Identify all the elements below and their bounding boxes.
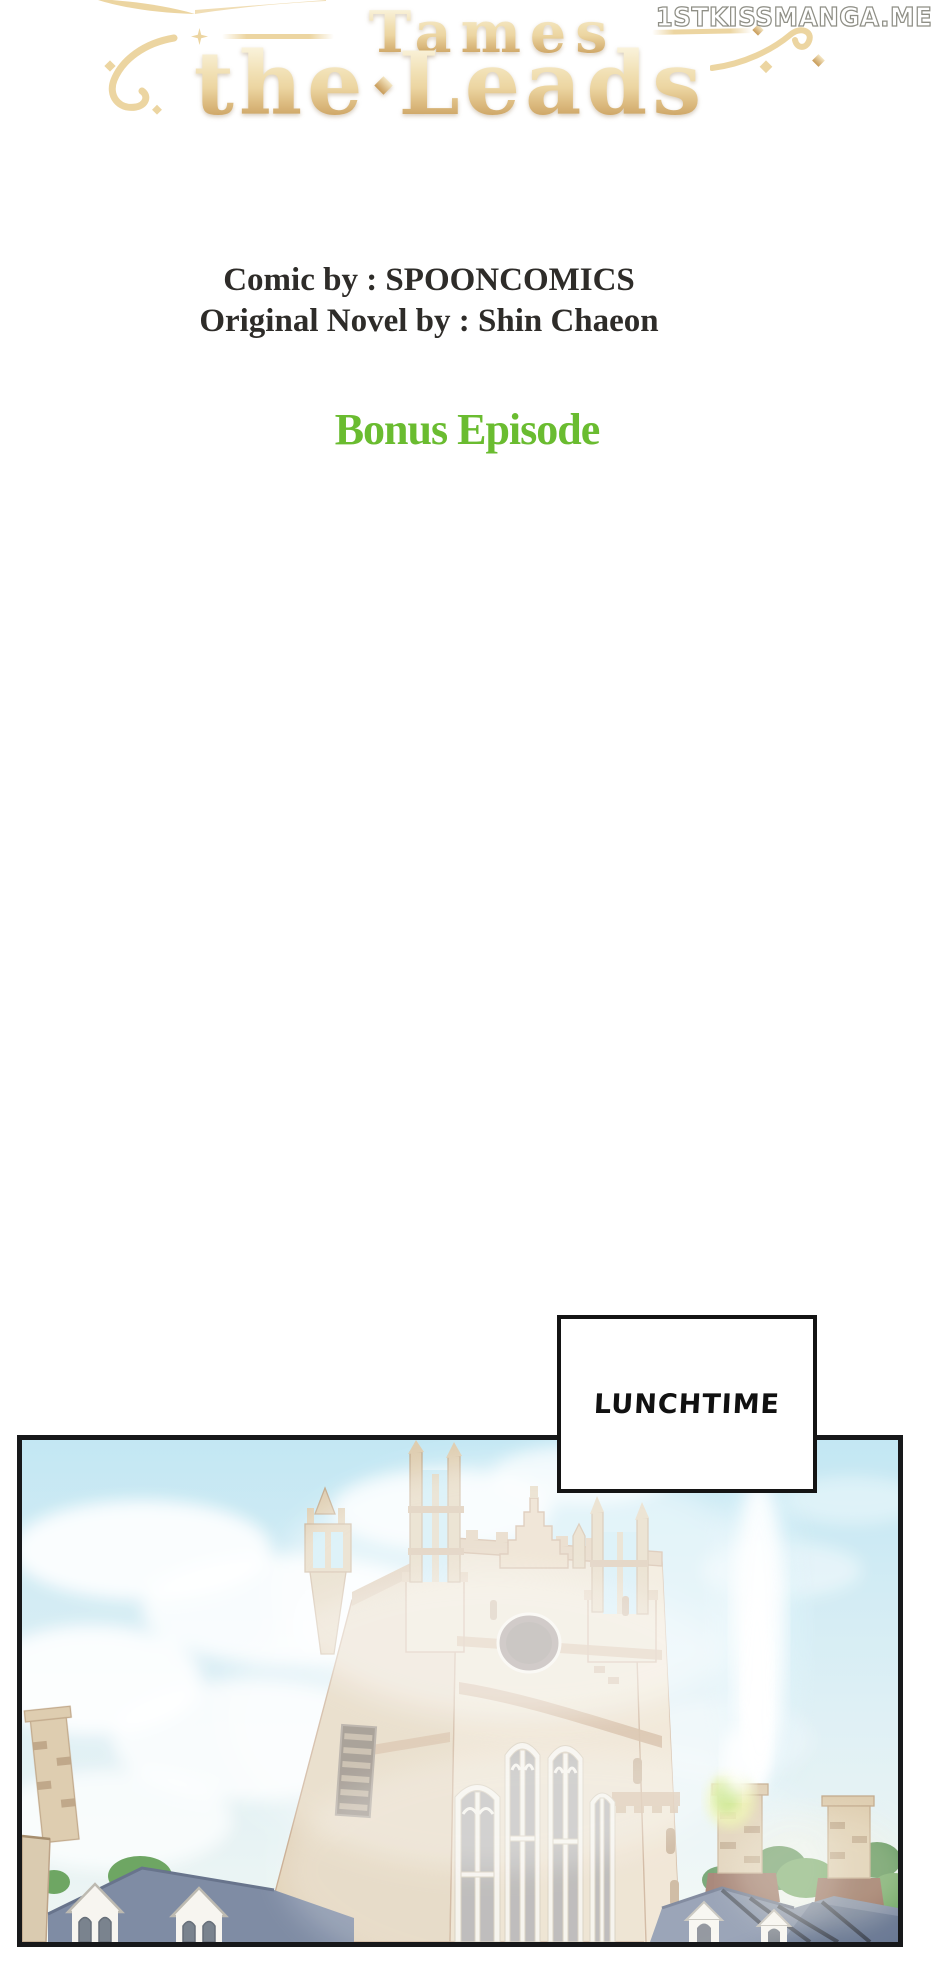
comic-panel <box>17 1435 903 1947</box>
speech-text: LUNCHTIME <box>593 1389 781 1420</box>
credits-block: Comic by : SPOONCOMICS Original Novel by… <box>0 260 858 342</box>
credit-comic-by: Comic by : SPOONCOMICS <box>0 260 858 301</box>
site-watermark: 1STKISSMANGA.ME <box>655 3 932 33</box>
title-top-swash-flourish <box>98 0 328 16</box>
title-line2: theLeads <box>150 40 750 127</box>
title-line2-word1: the <box>194 32 368 135</box>
title-separator-diamond-icon <box>374 76 392 94</box>
episode-title: Bonus Episode <box>38 404 896 455</box>
speech-box: LUNCHTIME <box>557 1315 817 1493</box>
credit-novel-by: Original Novel by : Shin Chaeon <box>0 301 858 342</box>
panel-illustration <box>22 1440 898 1942</box>
title-line2-word2: Leads <box>399 32 707 135</box>
haze-overlay <box>22 1440 898 1942</box>
comic-page: { "watermark": { "text": "1STKISSMANGA.M… <box>0 0 940 1972</box>
